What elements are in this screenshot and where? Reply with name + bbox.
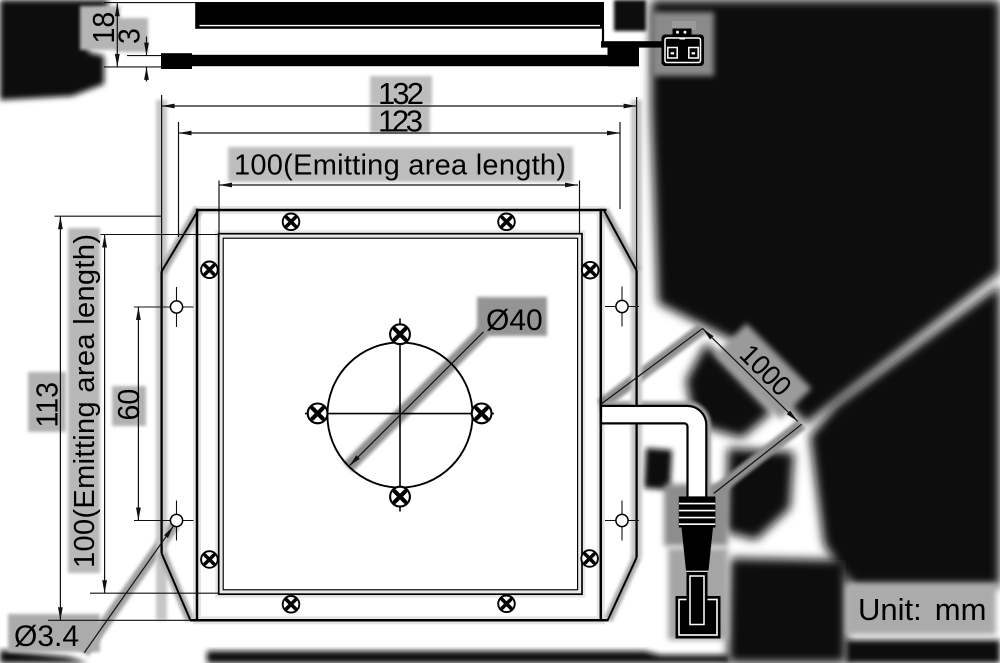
svg-text:113: 113 [30, 382, 64, 427]
svg-text:60: 60 [112, 389, 146, 421]
svg-text:123: 123 [378, 104, 423, 139]
svg-text:3: 3 [112, 28, 146, 44]
svg-text:100(Emitting area length): 100(Emitting area length) [234, 150, 566, 182]
svg-text:100(Emitting area length): 100(Emitting area length) [69, 234, 101, 568]
svg-text:Ø3.4: Ø3.4 [14, 620, 79, 653]
svg-text:Ø40: Ø40 [486, 304, 543, 337]
